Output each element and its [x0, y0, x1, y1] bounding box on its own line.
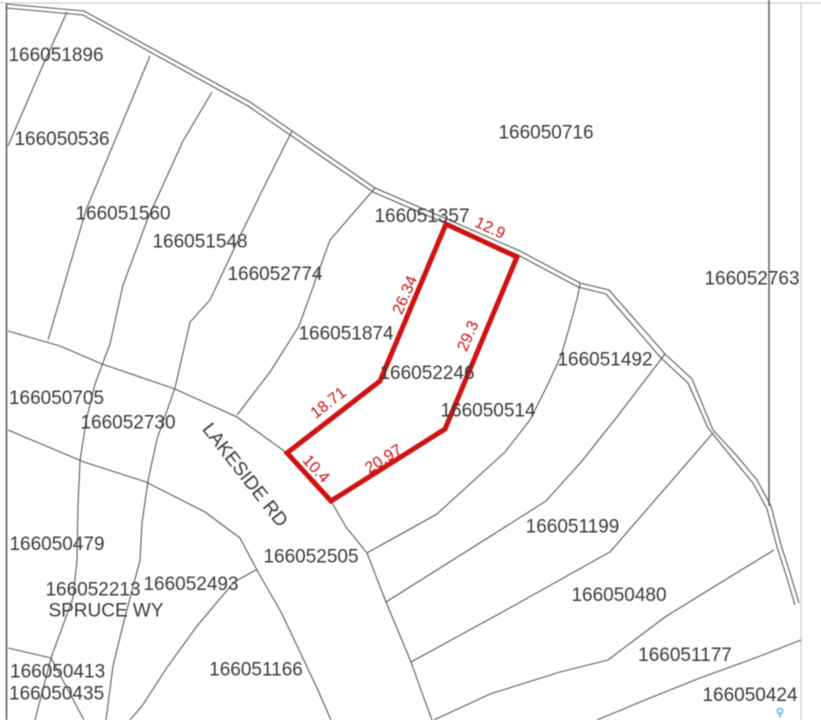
svg-text:166052774: 166052774	[227, 264, 323, 285]
svg-text:166051560: 166051560	[75, 204, 170, 225]
svg-text:166050435: 166050435	[9, 684, 104, 705]
svg-text:166051874: 166051874	[298, 324, 394, 345]
svg-text:166051896: 166051896	[8, 45, 103, 66]
svg-text:166051166: 166051166	[209, 660, 303, 681]
svg-text:SPRUCE WY: SPRUCE WY	[48, 601, 163, 622]
svg-text:166050424: 166050424	[702, 685, 798, 706]
svg-text:166051548: 166051548	[152, 232, 247, 253]
svg-text:166052763: 166052763	[704, 269, 799, 290]
svg-text:166051177: 166051177	[638, 645, 732, 666]
svg-text:166050705: 166050705	[9, 388, 104, 409]
svg-text:166050514: 166050514	[440, 401, 536, 422]
svg-text:166050480: 166050480	[571, 585, 666, 606]
svg-text:166050716: 166050716	[498, 123, 593, 144]
svg-text:166051357: 166051357	[374, 206, 469, 227]
svg-text:166052246: 166052246	[379, 363, 474, 384]
svg-text:166051492: 166051492	[557, 350, 652, 371]
svg-text:166052213: 166052213	[45, 580, 140, 601]
svg-text:166051199: 166051199	[526, 517, 620, 538]
svg-text:166050413: 166050413	[10, 662, 105, 683]
svg-text:166052505: 166052505	[263, 547, 358, 568]
svg-text:166052730: 166052730	[80, 413, 175, 434]
svg-text:166050479: 166050479	[9, 534, 104, 555]
svg-text:166052493: 166052493	[143, 574, 238, 595]
svg-text:166050536: 166050536	[14, 129, 109, 150]
